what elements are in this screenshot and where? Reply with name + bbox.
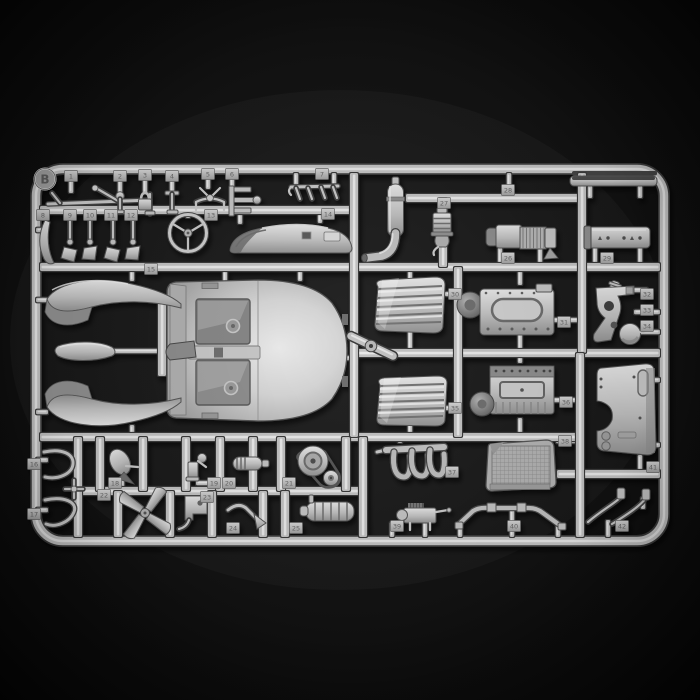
vignette-overlay [0,0,700,700]
photo-canvas: 1234567891011121314151617181920212223242… [0,0,700,700]
